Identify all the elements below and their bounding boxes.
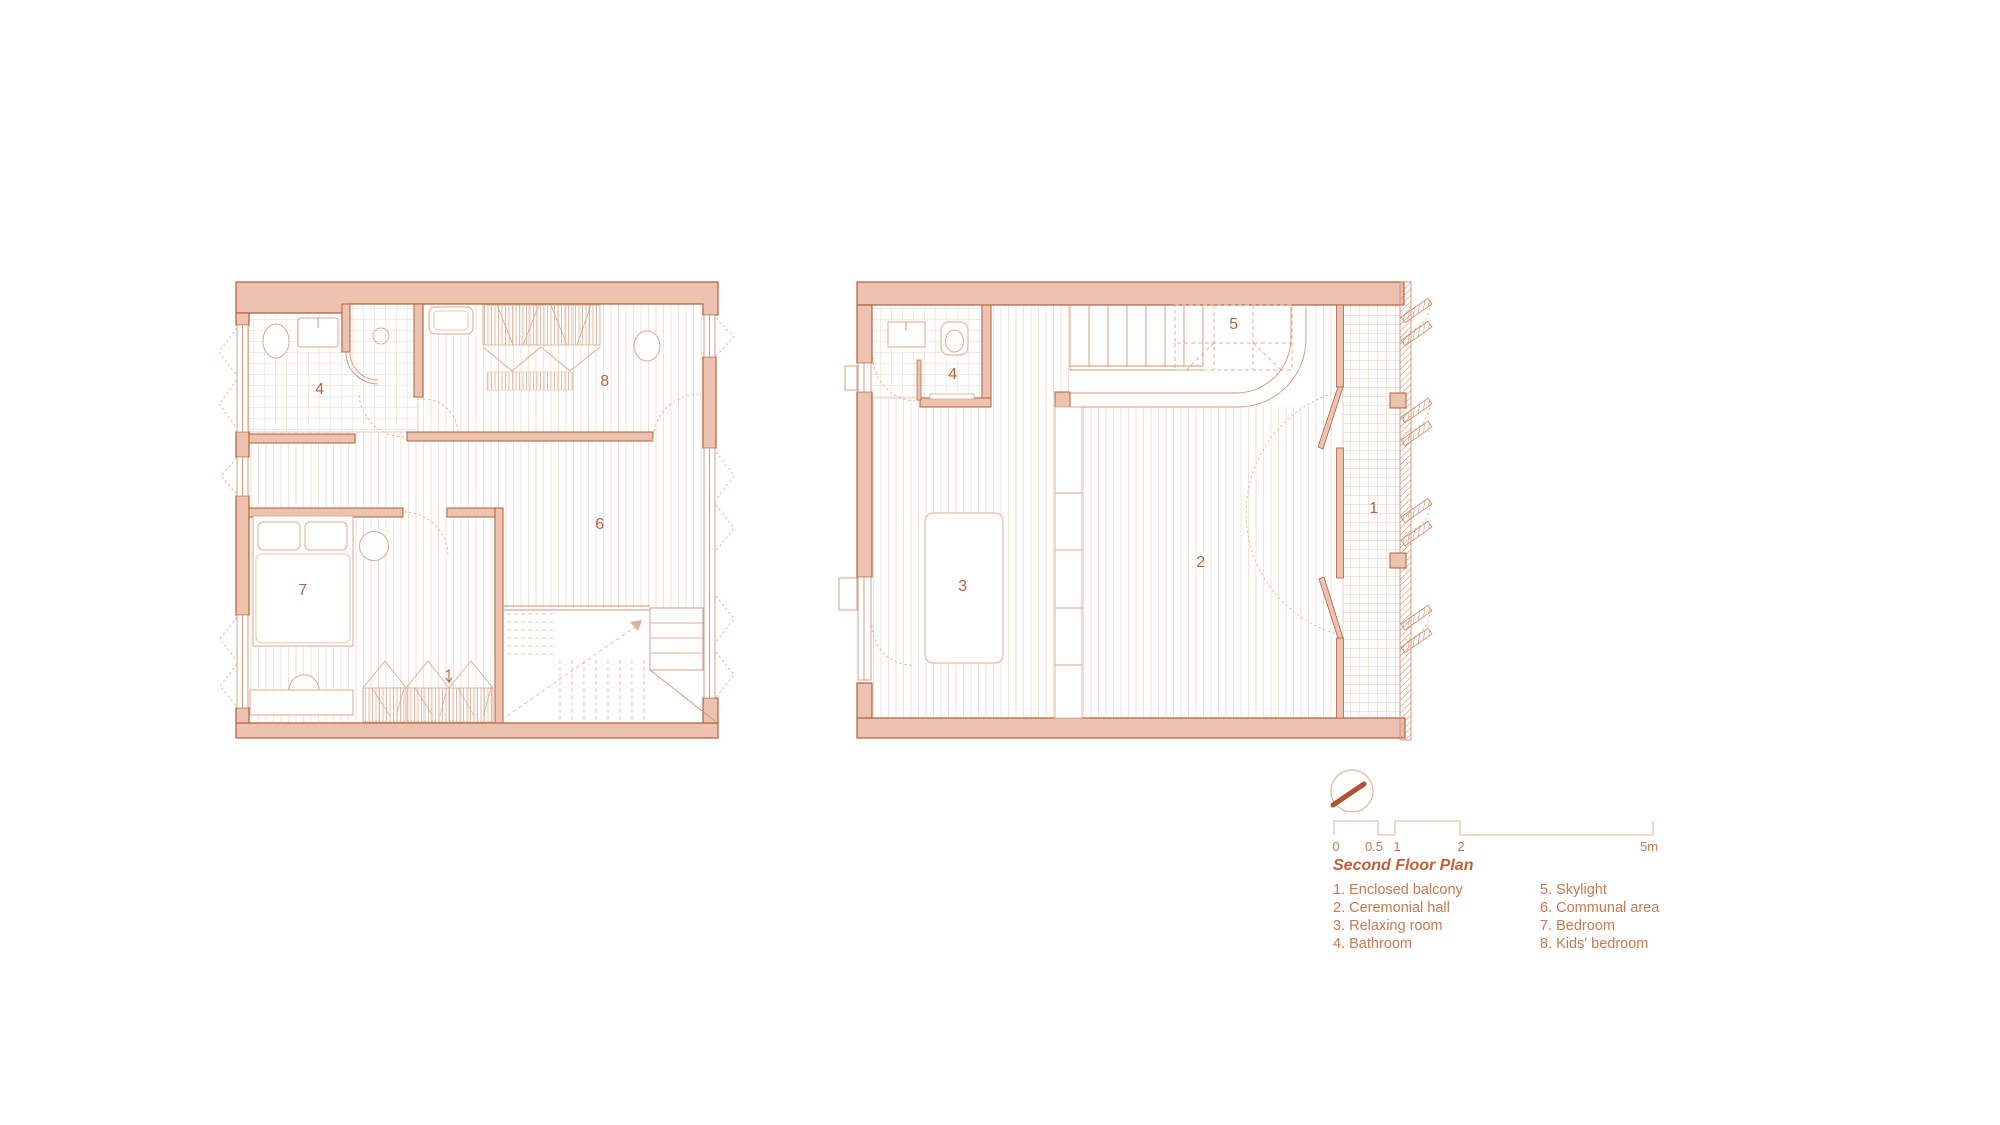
room-label-communal-area: 6 xyxy=(595,516,604,534)
legend-items: 1. Enclosed balcony 2. Ceremonial hall 3… xyxy=(1333,881,1763,953)
legend-item: 5. Skylight xyxy=(1540,881,1763,899)
scale-label-0-5: 0.5 xyxy=(1365,839,1383,854)
room-label-kids-bedroom: 8 xyxy=(600,373,609,391)
legend-item: 1. Enclosed balcony xyxy=(1333,881,1540,899)
shelf-column xyxy=(1055,407,1082,718)
legend-item: 8. Kids' bedroom xyxy=(1540,935,1763,953)
scale-label-1: 1 xyxy=(1393,839,1400,854)
drawing-sheet: 4 8 6 7 4 5 2 3 1 0 0.5 1 2 5m Second Fl… xyxy=(0,0,2000,1125)
scale-label-2: 2 xyxy=(1457,839,1464,854)
bench-icon xyxy=(487,372,573,390)
room-label-bathroom-left: 4 xyxy=(315,381,324,399)
wardrobe-hatch xyxy=(483,305,600,345)
stair-shelf xyxy=(650,608,703,670)
room-label-relaxing-room: 3 xyxy=(958,578,967,596)
floor-plan-drawing xyxy=(0,0,2000,1125)
right-plan xyxy=(839,282,1432,740)
legend-item: 4. Bathroom xyxy=(1333,935,1540,953)
room-label-bedroom: 7 xyxy=(298,582,307,600)
legend-item: 3. Relaxing room xyxy=(1333,917,1540,935)
scale-label-5m: 5m xyxy=(1640,839,1658,854)
pier xyxy=(1055,392,1070,407)
legend-title: Second Floor Plan xyxy=(1333,857,1763,875)
basin-icon xyxy=(634,331,660,361)
legend-item: 7. Bedroom xyxy=(1540,917,1763,935)
right-stair-floor xyxy=(1070,305,1310,407)
legend: Second Floor Plan 1. Enclosed balcony 2.… xyxy=(1333,857,1763,953)
dresser-icon xyxy=(250,690,353,715)
scale-label-0: 0 xyxy=(1332,839,1339,854)
legend-item: 6. Communal area xyxy=(1540,899,1763,917)
side-table-icon xyxy=(360,532,389,561)
toilet-icon xyxy=(263,324,289,358)
window-box-icon xyxy=(845,366,857,390)
toilet-icon xyxy=(941,322,968,355)
room-label-ceremonial-hall: 2 xyxy=(1196,554,1205,572)
room-label-skylight: 5 xyxy=(1229,316,1238,334)
room-label-bathroom-right: 4 xyxy=(948,366,957,384)
scale-bar xyxy=(1334,821,1653,835)
north-arrow-icon xyxy=(1331,770,1373,812)
window-box-icon xyxy=(839,578,857,610)
shower-tray-icon xyxy=(930,394,974,399)
left-plan xyxy=(219,282,734,738)
room-label-enclosed-balcony: 1 xyxy=(1369,500,1378,518)
legend-item: 2. Ceremonial hall xyxy=(1333,899,1540,917)
